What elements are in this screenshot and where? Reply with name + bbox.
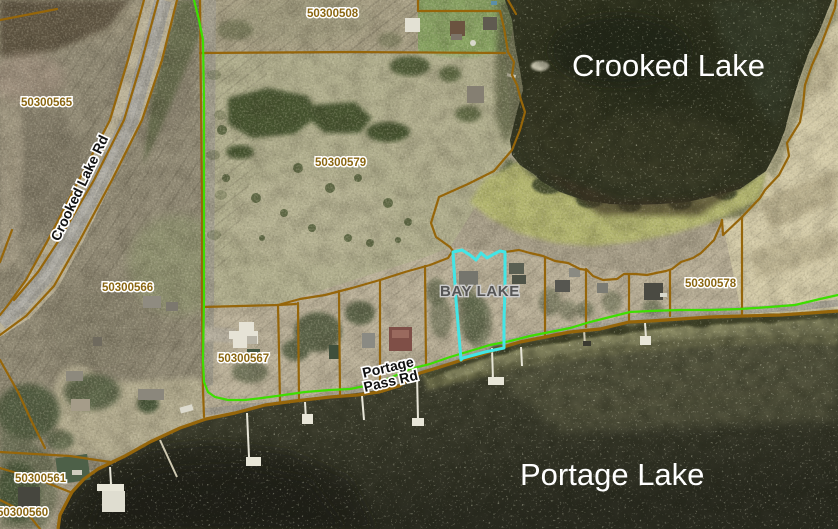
svg-text:50300578: 50300578 <box>685 278 737 290</box>
svg-text:50300561: 50300561 <box>15 473 67 485</box>
svg-text:50300579: 50300579 <box>315 157 366 169</box>
svg-text:Portage Lake: Portage Lake <box>520 457 704 492</box>
svg-text:Crooked Lake: Crooked Lake <box>572 48 765 83</box>
svg-text:50300567: 50300567 <box>218 353 269 365</box>
svg-text:50300566: 50300566 <box>102 282 153 294</box>
svg-text:50300565: 50300565 <box>21 97 73 109</box>
svg-text:50300508: 50300508 <box>307 8 359 20</box>
svg-text:50300560: 50300560 <box>0 507 48 519</box>
svg-text:BAY LAKE: BAY LAKE <box>440 283 520 300</box>
